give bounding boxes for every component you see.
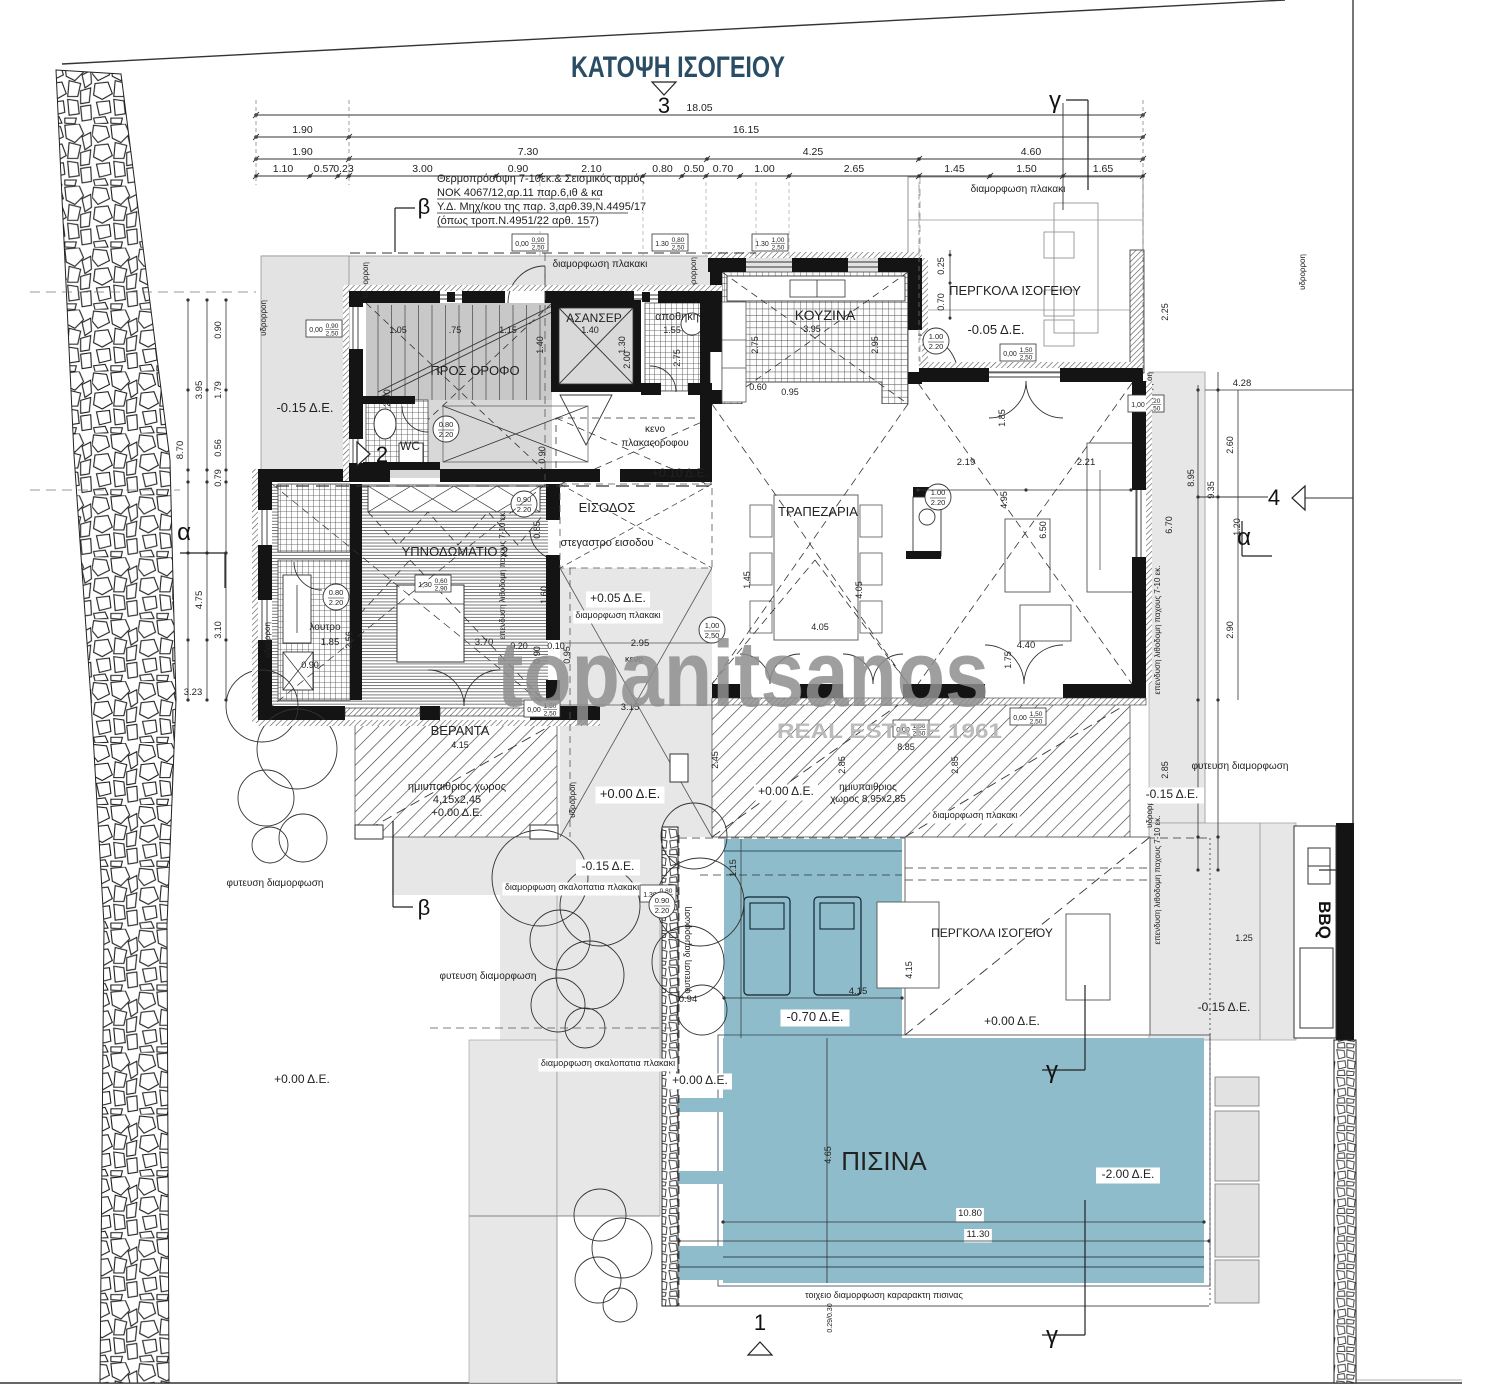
svg-text:λουτρο: λουτρο: [309, 622, 341, 633]
svg-text:0.23: 0.23: [333, 163, 354, 175]
svg-text:επενδυση λιθοδομη παχους 7-10: επενδυση λιθοδομη παχους 7-10 εκ.: [1153, 566, 1162, 695]
svg-text:0,90: 0,90: [532, 237, 545, 244]
svg-text:Θερμοπρόσοψη 7-10εκ.& Σεισμικό: Θερμοπρόσοψη 7-10εκ.& Σεισμικός αρμός: [437, 173, 645, 185]
svg-text:3.95: 3.95: [803, 324, 821, 334]
svg-text:ΑΣΑΝΣΕΡ: ΑΣΑΝΣΕΡ: [566, 311, 622, 325]
svg-text:2.21: 2.21: [1077, 457, 1096, 468]
svg-text:1.40: 1.40: [535, 336, 545, 354]
svg-text:2.20: 2.20: [931, 498, 946, 507]
svg-text:8.85: 8.85: [897, 742, 915, 752]
svg-text:2,50: 2,50: [326, 331, 339, 338]
svg-text:+0.00 Δ.Ε.: +0.00 Δ.Ε.: [274, 1072, 330, 1086]
svg-text:1,50: 1,50: [1020, 347, 1033, 354]
svg-text:WC: WC: [400, 439, 420, 453]
svg-text:+0.05 Δ.Ε.: +0.05 Δ.Ε.: [590, 591, 646, 605]
svg-text:1.55: 1.55: [663, 325, 681, 335]
svg-text:2.60: 2.60: [1225, 436, 1235, 454]
svg-text:1.00: 1.00: [754, 163, 775, 175]
svg-text:1.50: 1.50: [1016, 163, 1037, 175]
svg-text:0,90: 0,90: [326, 323, 339, 330]
svg-text:α: α: [1237, 524, 1251, 551]
svg-text:υδρορροη: υδρορροη: [259, 300, 268, 336]
svg-text:BBQ: BBQ: [1315, 901, 1334, 939]
svg-text:4.15: 4.15: [451, 740, 469, 750]
svg-text:4.15: 4.15: [904, 961, 914, 979]
svg-text:3: 3: [658, 93, 670, 118]
svg-text:2,50: 2,50: [672, 245, 685, 252]
svg-text:1.05: 1.05: [389, 325, 407, 335]
svg-text:1.79: 1.79: [213, 381, 223, 399]
svg-text:6.70: 6.70: [1164, 516, 1174, 534]
svg-text:1,50: 1,50: [1030, 711, 1043, 718]
svg-text:1.85: 1.85: [321, 637, 340, 648]
svg-text:αποθηκη: αποθηκη: [655, 311, 699, 323]
svg-text:επενδυση λιθοδομη παχους 7-10: επενδυση λιθοδομη παχους 7-10 εκ.: [1153, 816, 1162, 945]
svg-text:διαμορφωση πλακακι: διαμορφωση πλακακι: [575, 610, 660, 620]
svg-text:ΥΠΝΟΔΩΜΑΤΙΟ 2: ΥΠΝΟΔΩΜΑΤΙΟ 2: [402, 544, 509, 559]
svg-text:topanitsanos: topanitsanos: [497, 621, 989, 726]
svg-text:4.40: 4.40: [1017, 640, 1036, 651]
svg-text:1.90: 1.90: [292, 124, 313, 136]
svg-text:2.65: 2.65: [844, 163, 865, 175]
svg-text:ΤΡΑΠΕΖΑΡΙΑ: ΤΡΑΠΕΖΑΡΙΑ: [778, 504, 858, 519]
svg-text:4.15: 4.15: [849, 986, 868, 997]
svg-text:υδρορροη: υδρορροη: [568, 782, 577, 818]
svg-text:2.20: 2.20: [929, 342, 944, 351]
svg-text:χωρος 8,95x2,85: χωρος 8,95x2,85: [830, 794, 906, 805]
svg-text:ΠΕΡΓΚΟΛΑ ΙΣΟΓΕΙΟΥ: ΠΕΡΓΚΟΛΑ ΙΣΟΓΕΙΟΥ: [931, 926, 1053, 940]
svg-text:2,50: 2,50: [772, 245, 785, 252]
svg-text:4.05: 4.05: [854, 581, 864, 599]
svg-text:16.15: 16.15: [733, 124, 759, 136]
svg-text:ΕΙΣΟΔΟΣ: ΕΙΣΟΔΟΣ: [579, 500, 636, 515]
svg-text:0,80: 0,80: [672, 237, 685, 244]
svg-text:1.00: 1.00: [931, 488, 946, 497]
svg-text:τοιχειο διαμορφωση καραρακτη π: τοιχειο διαμορφωση καραρακτη πισινας: [805, 1290, 963, 1300]
svg-text:2.85: 2.85: [950, 756, 960, 774]
svg-text:διαμορφωση πλακακι: διαμορφωση πλακακι: [971, 184, 1066, 195]
svg-text:0,00: 0,00: [515, 241, 529, 248]
svg-text:α: α: [177, 519, 191, 546]
svg-text:REAL ESTATE 1961: REAL ESTATE 1961: [777, 720, 1002, 743]
svg-text:ΠΙΣΙΝΑ: ΠΙΣΙΝΑ: [841, 1146, 927, 1176]
svg-text:11.30: 11.30: [966, 1229, 989, 1240]
svg-text:ημιυπαιθριος: ημιυπαιθριος: [839, 782, 897, 793]
svg-text:0,00: 0,00: [309, 327, 323, 334]
svg-text:+0.00 Δ.Ε.: +0.00 Δ.Ε.: [758, 784, 814, 798]
svg-text:-0.05 Δ.Ε.: -0.05 Δ.Ε.: [967, 322, 1024, 337]
svg-text:1.45: 1.45: [944, 163, 965, 175]
svg-text:2,50: 2,50: [1020, 355, 1033, 362]
svg-text:υδρορροη: υδρορροη: [263, 622, 272, 658]
svg-text:4.75: 4.75: [194, 591, 205, 610]
svg-text:0.85: 0.85: [532, 521, 542, 539]
svg-text:1,00: 1,00: [772, 237, 785, 244]
svg-text:0.70: 0.70: [713, 163, 734, 175]
svg-text:φυτευση διαμορφωση: φυτευση διαμορφωση: [682, 906, 692, 993]
svg-text:4.65: 4.65: [823, 1146, 833, 1164]
svg-text:+0.00 Δ.Ε.: +0.00 Δ.Ε.: [672, 1073, 728, 1087]
svg-text:υδρορροη: υδρορροη: [361, 262, 370, 298]
svg-text:2,50: 2,50: [1030, 719, 1043, 726]
svg-text:1.15: 1.15: [728, 859, 738, 877]
svg-text:-0.15 Δ.Ε.: -0.15 Δ.Ε.: [1146, 787, 1199, 801]
svg-text:0.80: 0.80: [439, 420, 454, 429]
svg-text:4,15x2,45: 4,15x2,45: [433, 794, 481, 806]
svg-text:2.25: 2.25: [1160, 303, 1170, 321]
svg-text:2.45: 2.45: [710, 751, 720, 769]
svg-text:1.00: 1.00: [929, 332, 944, 341]
svg-text:2.75: 2.75: [672, 349, 682, 367]
svg-text:διαμορφωση πλακακι: διαμορφωση πλακακι: [932, 810, 1017, 820]
svg-text:-0.15 Δ.Ε.: -0.15 Δ.Ε.: [1198, 1000, 1251, 1014]
svg-text:1: 1: [754, 1310, 766, 1335]
svg-text:0.57: 0.57: [314, 163, 335, 175]
svg-text:ΚΑΤΟΨΗ ΙΣΟΓΕΙΟΥ: ΚΑΤΟΨΗ ΙΣΟΓΕΙΟΥ: [571, 51, 785, 84]
svg-text:0,60: 0,60: [435, 578, 448, 585]
svg-text:0.79: 0.79: [213, 469, 223, 487]
svg-text:1.40: 1.40: [581, 325, 599, 335]
svg-text:8.95: 8.95: [1186, 469, 1196, 487]
svg-text:(όπως τροπ.Ν.4951/22 αρθ. 157): (όπως τροπ.Ν.4951/22 αρθ. 157): [437, 215, 599, 227]
svg-text:8.70: 8.70: [175, 441, 186, 460]
svg-text:0.25: 0.25: [936, 257, 946, 275]
svg-text:2.20: 2.20: [655, 906, 670, 915]
svg-text:1.75: 1.75: [1003, 651, 1013, 669]
svg-text:1.25: 1.25: [1235, 933, 1253, 943]
svg-text:3.23: 3.23: [184, 687, 203, 698]
svg-text:0.80: 0.80: [329, 588, 344, 597]
svg-text:3.00: 3.00: [412, 163, 433, 175]
svg-text:Υ.Δ. Μηχ/κου της παρ. 3,αρθ.39: Υ.Δ. Μηχ/κου της παρ. 3,αρθ.39,Ν.4495/17: [437, 201, 646, 213]
svg-text:3.10: 3.10: [213, 621, 223, 639]
svg-text:0.95: 0.95: [781, 387, 799, 397]
svg-text:φυτευση διαμορφωση: φυτευση διαμορφωση: [227, 878, 324, 889]
svg-text:-2.00 Δ.Ε.: -2.00 Δ.Ε.: [1102, 1167, 1155, 1181]
svg-text:ΝΟΚ 4067/12,αρ.11 παρ.6,ιθ & κ: ΝΟΚ 4067/12,αρ.11 παρ.6,ιθ & κα: [437, 187, 604, 199]
svg-text:β: β: [418, 194, 431, 219]
svg-text:4.95: 4.95: [999, 491, 1009, 509]
svg-text:2.85: 2.85: [1160, 761, 1170, 779]
svg-text:4.28: 4.28: [1233, 378, 1252, 389]
svg-text:3.95: 3.95: [194, 381, 205, 400]
svg-text:3.70: 3.70: [475, 637, 494, 648]
svg-text:1.90: 1.90: [292, 146, 313, 158]
svg-text:ΠΡΟΣ ΟΡΟΦΟ: ΠΡΟΣ ΟΡΟΦΟ: [430, 363, 519, 378]
svg-text:2: 2: [376, 442, 388, 467]
svg-text:2,50: 2,50: [532, 245, 545, 252]
svg-text:2,90: 2,90: [435, 586, 448, 593]
svg-text:0.70: 0.70: [936, 293, 946, 311]
svg-text:+0.00 Δ.Ε.: +0.00 Δ.Ε.: [600, 786, 660, 801]
svg-text:υδρορροη: υδρορροη: [1298, 254, 1307, 290]
svg-text:1,00: 1,00: [1131, 402, 1145, 409]
svg-text:2.20: 2.20: [517, 505, 532, 514]
svg-text:2.00: 2.00: [382, 389, 392, 407]
svg-text:0,00: 0,00: [1013, 715, 1027, 722]
svg-text:0.50: 0.50: [684, 163, 705, 175]
svg-text:διαμορφωση σκαλοπατια πλακακι: διαμορφωση σκαλοπατια πλακακι: [505, 882, 639, 892]
svg-text:2.00: 2.00: [622, 351, 632, 369]
svg-text:+0.10 Δ.Ε.: +0.10 Δ.Ε.: [652, 466, 708, 480]
svg-text:+0.00 Δ.Ε.: +0.00 Δ.Ε.: [431, 807, 482, 819]
svg-text:1.30: 1.30: [617, 336, 627, 354]
svg-text:-0.15 Δ.Ε.: -0.15 Δ.Ε.: [276, 400, 333, 415]
svg-text:ημιυπαιθριος χωρος: ημιυπαιθριος χωρος: [408, 781, 506, 793]
svg-text:0.80: 0.80: [652, 163, 673, 175]
svg-text:-0.15 Δ.Ε.: -0.15 Δ.Ε.: [582, 859, 635, 873]
svg-text:4.25: 4.25: [803, 146, 824, 158]
svg-text:4: 4: [1268, 485, 1280, 510]
svg-text:0.94: 0.94: [679, 994, 698, 1005]
svg-text:διαμορφωση πλακακι: διαμορφωση πλακακι: [553, 259, 648, 270]
svg-text:0.90: 0.90: [301, 660, 319, 670]
svg-text:0.56: 0.56: [213, 439, 223, 457]
svg-text:+0.00 Δ.Ε.: +0.00 Δ.Ε.: [984, 1014, 1040, 1028]
svg-text:10.80: 10.80: [958, 1208, 982, 1219]
svg-text:-0.70 Δ.Ε.: -0.70 Δ.Ε.: [786, 1009, 843, 1024]
svg-text:1.10: 1.10: [273, 163, 294, 175]
svg-text:2.75: 2.75: [750, 336, 760, 354]
svg-text:0,00: 0,00: [1003, 351, 1017, 358]
svg-text:2.20: 2.20: [329, 598, 344, 607]
svg-text:2.20: 2.20: [439, 430, 454, 439]
svg-text:1.15: 1.15: [499, 325, 517, 335]
svg-text:4.60: 4.60: [1021, 146, 1042, 158]
svg-text:2.90: 2.90: [1225, 621, 1235, 639]
svg-text:18.05: 18.05: [686, 102, 712, 114]
svg-text:9.35: 9.35: [1206, 481, 1216, 499]
svg-text:φυτευση διαμορφωση: φυτευση διαμορφωση: [440, 971, 537, 982]
svg-text:0.90: 0.90: [655, 896, 670, 905]
svg-text:1.85: 1.85: [997, 409, 1007, 427]
svg-text:0.29/0.30: 0.29/0.30: [827, 1303, 834, 1332]
svg-text:στεγαστρο εισοδου: στεγαστρο εισοδου: [561, 537, 654, 549]
svg-text:2.19: 2.19: [957, 457, 976, 468]
svg-text:7.30: 7.30: [518, 146, 539, 158]
svg-text:0.90: 0.90: [537, 446, 547, 464]
svg-text:1.30: 1.30: [755, 241, 769, 248]
svg-text:πλακαςοροφου: πλακαςοροφου: [621, 438, 688, 449]
svg-text:ΚΟΥΖΙΝΑ: ΚΟΥΖΙΝΑ: [795, 307, 856, 323]
svg-text:κενο: κενο: [645, 424, 665, 435]
svg-text:2.85: 2.85: [837, 756, 847, 774]
svg-text:1.30: 1.30: [655, 241, 669, 248]
svg-text:0.90: 0.90: [213, 321, 223, 339]
svg-text:2.56: 2.56: [344, 631, 354, 649]
svg-text:0.60: 0.60: [749, 382, 767, 392]
svg-text:6.50: 6.50: [1038, 521, 1048, 539]
svg-text:ΠΕΡΓΚΟΛΑ ΙΣΟΓΕΙΟΥ: ΠΕΡΓΚΟΛΑ ΙΣΟΓΕΙΟΥ: [949, 283, 1081, 298]
svg-text:διαμορφωση σκαλοπατια πλακακι: διαμορφωση σκαλοπατια πλακακι: [541, 1058, 675, 1068]
svg-text:φυτευση διαμορφωση: φυτευση διαμορφωση: [1192, 761, 1289, 772]
svg-text:β: β: [418, 895, 431, 920]
svg-text:1.65: 1.65: [1093, 163, 1114, 175]
svg-text:2.95: 2.95: [870, 336, 880, 354]
svg-text:1.45: 1.45: [742, 571, 752, 589]
svg-text:γ: γ: [1049, 87, 1061, 114]
svg-text:.75: .75: [449, 325, 462, 335]
svg-text:0.90: 0.90: [517, 495, 532, 504]
svg-text:1.60: 1.60: [539, 586, 549, 604]
